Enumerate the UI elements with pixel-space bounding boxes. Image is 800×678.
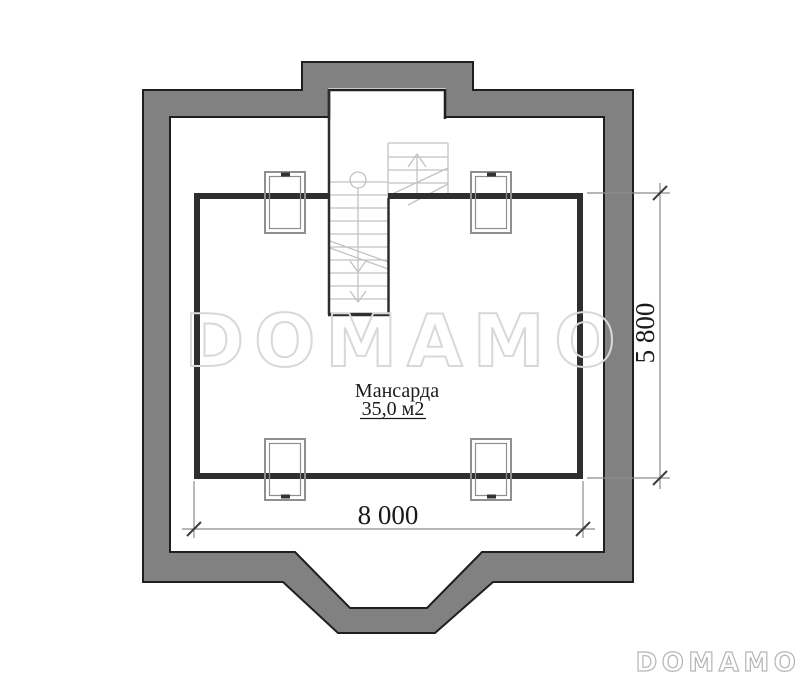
brand-logo: DOMAMO [636, 648, 800, 678]
floor-plan-page: 8 000 5 800 Мансарда 35,0 м2 DOMAMO DOMA… [0, 0, 800, 678]
window-inner-frame [270, 177, 301, 229]
window-frame [265, 439, 305, 500]
room-label: Мансарда 35,0 м2 [355, 380, 439, 420]
dimension-horizontal: 8 000 [182, 481, 595, 538]
stair-upper-steps [388, 157, 448, 183]
stair-break-upper [388, 168, 448, 205]
window-symbol-top-left [265, 172, 305, 233]
stair-shaft-opening [328, 88, 446, 119]
window-frame [265, 172, 305, 233]
window-frame [471, 172, 511, 233]
window-hinge-tick [487, 173, 496, 177]
window-hinge-tick [281, 495, 290, 499]
dimension-vertical-value: 5 800 [630, 303, 660, 364]
room-area-label: 35,0 м2 [362, 398, 425, 420]
window-hinge-tick [281, 173, 290, 177]
window-inner-frame [270, 444, 301, 496]
dimension-horizontal-value: 8 000 [358, 500, 419, 530]
window-inner-frame [476, 444, 507, 496]
window-frame [471, 439, 511, 500]
window-hinge-tick [487, 495, 496, 499]
window-inner-frame [476, 177, 507, 229]
watermark: DOMAMO [184, 299, 625, 383]
stair-shaft-fill [328, 88, 446, 119]
floor-plan-svg: 8 000 5 800 Мансарда 35,0 м2 DOMAMO DOMA… [0, 0, 800, 678]
stair-lower-steps [330, 182, 388, 299]
window-symbol-bottom-left [265, 439, 305, 500]
stair-start-circle-icon [350, 172, 366, 188]
window-symbol-top-right [471, 172, 511, 233]
window-symbol-bottom-right [471, 439, 511, 500]
stair-break-lower [330, 241, 388, 269]
